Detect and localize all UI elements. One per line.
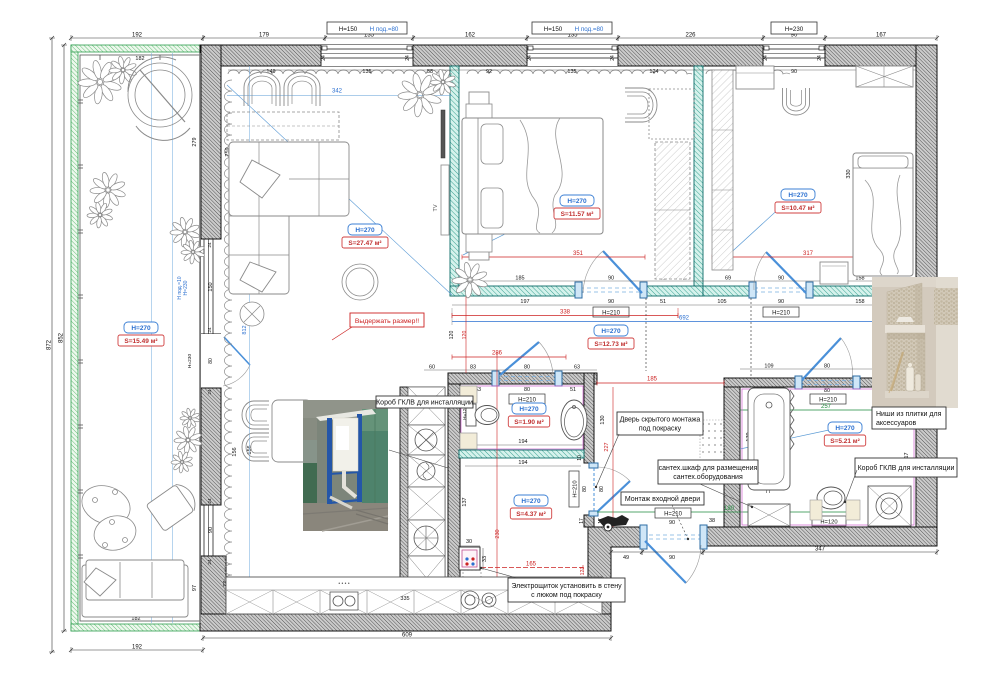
svg-text:24: 24 (610, 55, 616, 61)
svg-text:S=5.21 м²: S=5.21 м² (830, 438, 860, 445)
svg-text:335: 335 (400, 596, 409, 602)
svg-text:80: 80 (524, 365, 530, 371)
svg-text:227: 227 (604, 442, 610, 451)
svg-text:80: 80 (824, 364, 830, 370)
svg-text:H=270: H=270 (788, 192, 808, 199)
svg-text:338: 338 (560, 310, 571, 316)
svg-text:10: 10 (577, 455, 583, 461)
svg-text:24: 24 (817, 55, 823, 61)
svg-text:150: 150 (208, 282, 214, 291)
svg-text:H=270: H=270 (567, 198, 587, 205)
svg-text:194: 194 (518, 460, 527, 466)
svg-text:30: 30 (466, 539, 472, 545)
svg-text:Короб ГКЛВ для инсталляции: Короб ГКЛВ для инсталляции (858, 464, 955, 472)
svg-text:158: 158 (855, 299, 864, 305)
svg-text:H под.=80: H под.=80 (575, 26, 604, 33)
svg-text:24: 24 (321, 55, 327, 61)
svg-text:сантех.шкаф для размещения: сантех.шкаф для размещения (659, 465, 758, 472)
svg-text:H=210: H=210 (573, 480, 579, 497)
svg-text:H=270: H=270 (519, 406, 539, 413)
svg-text:812: 812 (242, 325, 248, 334)
svg-text:H=230: H=230 (183, 280, 189, 295)
svg-text:H=270: H=270 (601, 328, 621, 335)
svg-text:H=270: H=270 (521, 498, 541, 505)
svg-text:H=150: H=150 (544, 26, 563, 33)
svg-text:сантех.оборудования: сантех.оборудования (673, 473, 743, 481)
svg-text:51: 51 (660, 299, 666, 305)
svg-text:226: 226 (685, 33, 696, 39)
svg-text:24: 24 (207, 327, 213, 333)
svg-text:156: 156 (232, 447, 238, 456)
svg-text:351: 351 (573, 251, 584, 257)
svg-text:123: 123 (580, 567, 586, 576)
svg-text:под покраску: под покраску (639, 425, 682, 432)
svg-text:90: 90 (778, 299, 784, 305)
svg-text:230: 230 (495, 529, 501, 538)
svg-text:S=1.90 м²: S=1.90 м² (514, 419, 544, 426)
svg-text:H=150: H=150 (339, 26, 358, 33)
svg-text:286: 286 (492, 351, 503, 357)
svg-text:347: 347 (815, 547, 826, 553)
svg-text:H=230: H=230 (785, 26, 804, 33)
svg-text:692: 692 (679, 316, 690, 322)
svg-text:130: 130 (600, 415, 606, 424)
svg-text:H=270: H=270 (835, 425, 855, 432)
svg-text:179: 179 (259, 33, 270, 39)
svg-text:80: 80 (582, 486, 588, 492)
svg-text:872: 872 (47, 339, 53, 350)
svg-text:194: 194 (518, 439, 527, 445)
svg-text:S=11.57 м²: S=11.57 м² (561, 211, 595, 218)
svg-text:257: 257 (821, 404, 832, 410)
svg-text:90: 90 (608, 299, 614, 305)
svg-text:97: 97 (192, 585, 198, 591)
svg-text:120: 120 (449, 331, 455, 340)
svg-text:H под.=80: H под.=80 (370, 26, 399, 33)
svg-text:162: 162 (465, 33, 476, 39)
svg-text:137: 137 (462, 497, 468, 506)
svg-text:S=12.73 м²: S=12.73 м² (594, 341, 628, 348)
svg-text:51: 51 (570, 387, 576, 393)
svg-text:80: 80 (524, 387, 530, 393)
svg-text:80: 80 (208, 358, 214, 364)
svg-text:109: 109 (764, 364, 773, 370)
svg-text:17: 17 (579, 518, 585, 524)
svg-text:24: 24 (207, 559, 213, 565)
svg-text:24: 24 (207, 389, 213, 395)
svg-text:90: 90 (669, 555, 675, 561)
svg-text:90: 90 (778, 276, 784, 282)
svg-text:38: 38 (709, 518, 715, 524)
svg-text:197: 197 (520, 299, 529, 305)
svg-text:90: 90 (669, 520, 675, 526)
svg-text:24: 24 (405, 55, 411, 61)
svg-text:H под.=10: H под.=10 (177, 276, 183, 299)
svg-text:105: 105 (717, 299, 726, 305)
svg-text:69: 69 (725, 276, 731, 282)
svg-text:Выдержать размер!!: Выдержать размер!! (355, 318, 419, 325)
svg-text:167: 167 (876, 33, 887, 39)
svg-text:120: 120 (462, 331, 468, 340)
svg-text:S=10.47 м²: S=10.47 м² (781, 205, 815, 212)
svg-text:S=15.49 м²: S=15.49 м² (124, 338, 158, 345)
svg-text:S=4.37 м²: S=4.37 м² (516, 511, 546, 518)
svg-text:342: 342 (332, 89, 343, 95)
svg-text:80: 80 (599, 486, 605, 492)
svg-text:H=120: H=120 (820, 520, 837, 526)
svg-text:Электрощиток установить в стен: Электрощиток установить в стену (511, 583, 622, 590)
svg-text:Короб ГКЛВ для инсталляции: Короб ГКЛВ для инсталляции (376, 398, 473, 406)
svg-text:с люком под покраску: с люком под покраску (531, 592, 602, 599)
svg-text:H=210: H=210 (772, 311, 791, 317)
svg-text:192: 192 (132, 33, 143, 39)
svg-text:Дверь скрытого монтажа: Дверь скрытого монтажа (620, 416, 701, 423)
svg-text:182: 182 (135, 56, 144, 62)
svg-text:317: 317 (803, 251, 814, 257)
svg-text:180: 180 (724, 506, 735, 512)
svg-text:60: 60 (429, 365, 435, 371)
svg-text:TV: TV (433, 204, 439, 211)
svg-text:279: 279 (192, 137, 198, 146)
svg-text:852: 852 (59, 332, 65, 343)
svg-text:63: 63 (574, 365, 580, 371)
svg-text:H=230: H=230 (187, 354, 193, 369)
svg-text:83: 83 (470, 365, 476, 371)
svg-text:H=210: H=210 (819, 398, 838, 404)
svg-text:49: 49 (623, 555, 629, 561)
svg-text:24: 24 (763, 55, 769, 61)
svg-text:24: 24 (207, 242, 213, 248)
svg-text:90: 90 (208, 527, 214, 533)
svg-text:H=210: H=210 (664, 512, 683, 518)
svg-text:Монтаж входной двери: Монтаж входной двери (625, 495, 700, 503)
svg-text:• • • •: • • • • (338, 581, 349, 587)
svg-text:185: 185 (515, 276, 524, 282)
svg-text:24: 24 (527, 55, 533, 61)
svg-text:24: 24 (207, 498, 213, 504)
svg-text:H=270: H=270 (355, 227, 375, 234)
svg-text:609: 609 (402, 633, 413, 639)
svg-text:Ниши из плитки для: Ниши из плитки для (876, 411, 942, 418)
svg-text:330: 330 (846, 169, 852, 178)
svg-text:165: 165 (526, 562, 537, 568)
svg-text:90: 90 (608, 276, 614, 282)
svg-text:H=270: H=270 (131, 325, 151, 332)
svg-text:аксессуаров: аксессуаров (876, 420, 917, 427)
svg-text:S=27.47 м²: S=27.47 м² (348, 240, 382, 247)
svg-text:192: 192 (132, 645, 143, 651)
svg-text:185: 185 (647, 377, 658, 383)
